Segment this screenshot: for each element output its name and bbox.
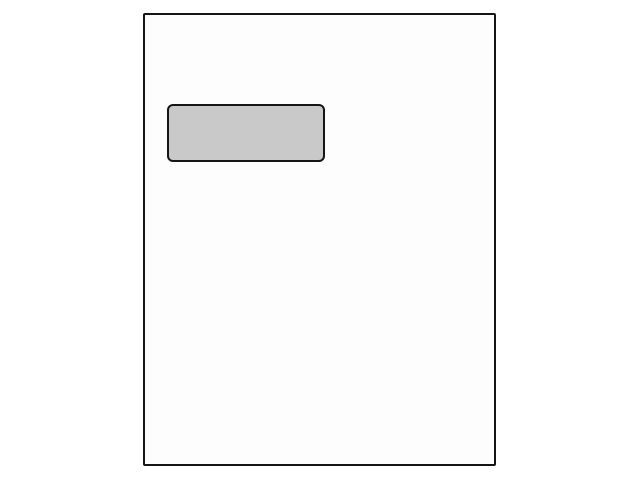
address-window xyxy=(167,104,325,162)
product-illustration xyxy=(0,0,640,480)
envelope-sheet xyxy=(143,13,496,466)
